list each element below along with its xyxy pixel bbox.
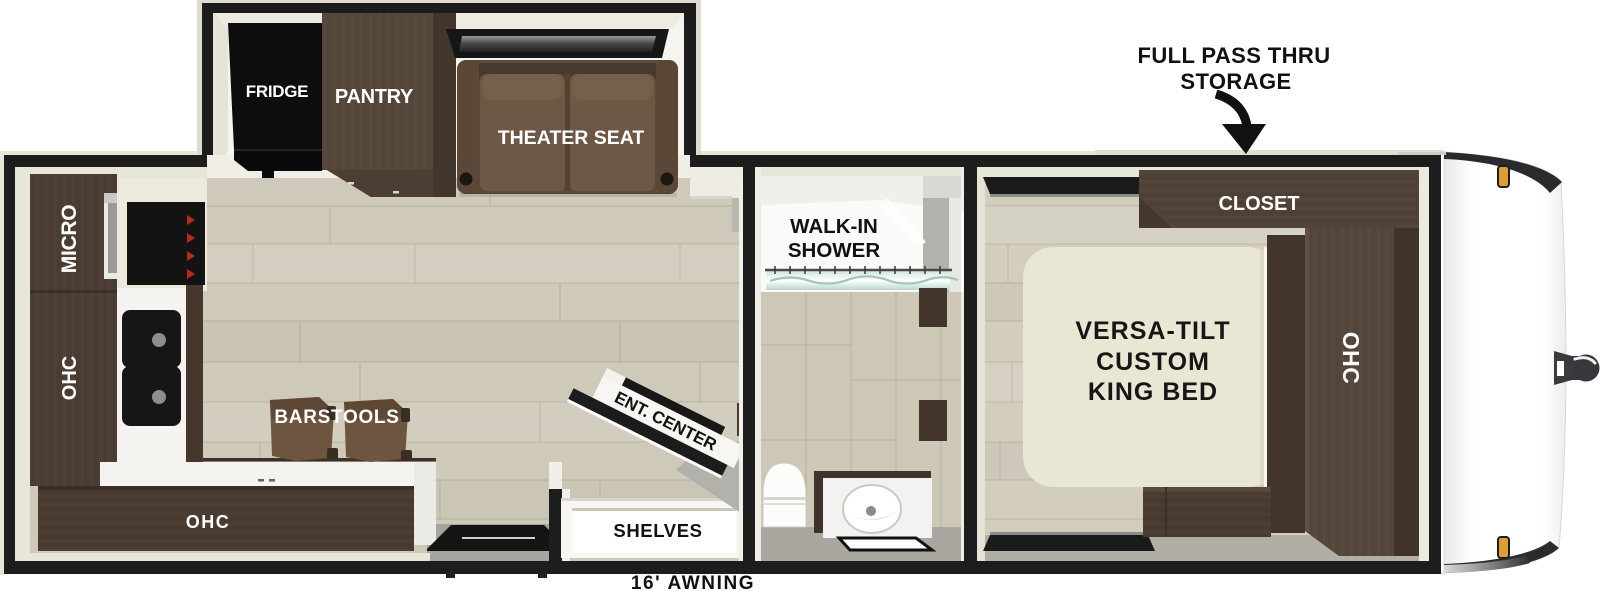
- svg-text:OHC: OHC: [186, 512, 231, 532]
- svg-text:MICRO: MICRO: [58, 205, 81, 274]
- svg-text:OHC: OHC: [59, 356, 81, 400]
- svg-text:BARSTOOLS: BARSTOOLS: [274, 407, 399, 428]
- svg-text:16' AWNING: 16' AWNING: [631, 573, 755, 591]
- svg-text:KING BED: KING BED: [1088, 378, 1218, 406]
- svg-text:PANTRY: PANTRY: [335, 86, 414, 108]
- svg-text:STORAGE: STORAGE: [1180, 69, 1291, 94]
- svg-text:CLOSET: CLOSET: [1218, 193, 1299, 215]
- svg-text:OHC: OHC: [1338, 332, 1364, 385]
- svg-text:WALK-IN: WALK-IN: [790, 215, 878, 238]
- svg-text:SHELVES: SHELVES: [613, 520, 702, 541]
- svg-text:VERSA-TILT: VERSA-TILT: [1075, 317, 1230, 345]
- svg-text:FULL PASS THRU: FULL PASS THRU: [1137, 43, 1330, 68]
- svg-text:THEATER SEAT: THEATER SEAT: [498, 127, 645, 149]
- svg-text:FRIDGE: FRIDGE: [246, 82, 308, 101]
- svg-text:CUSTOM: CUSTOM: [1096, 348, 1210, 376]
- svg-text:SHOWER: SHOWER: [788, 239, 880, 262]
